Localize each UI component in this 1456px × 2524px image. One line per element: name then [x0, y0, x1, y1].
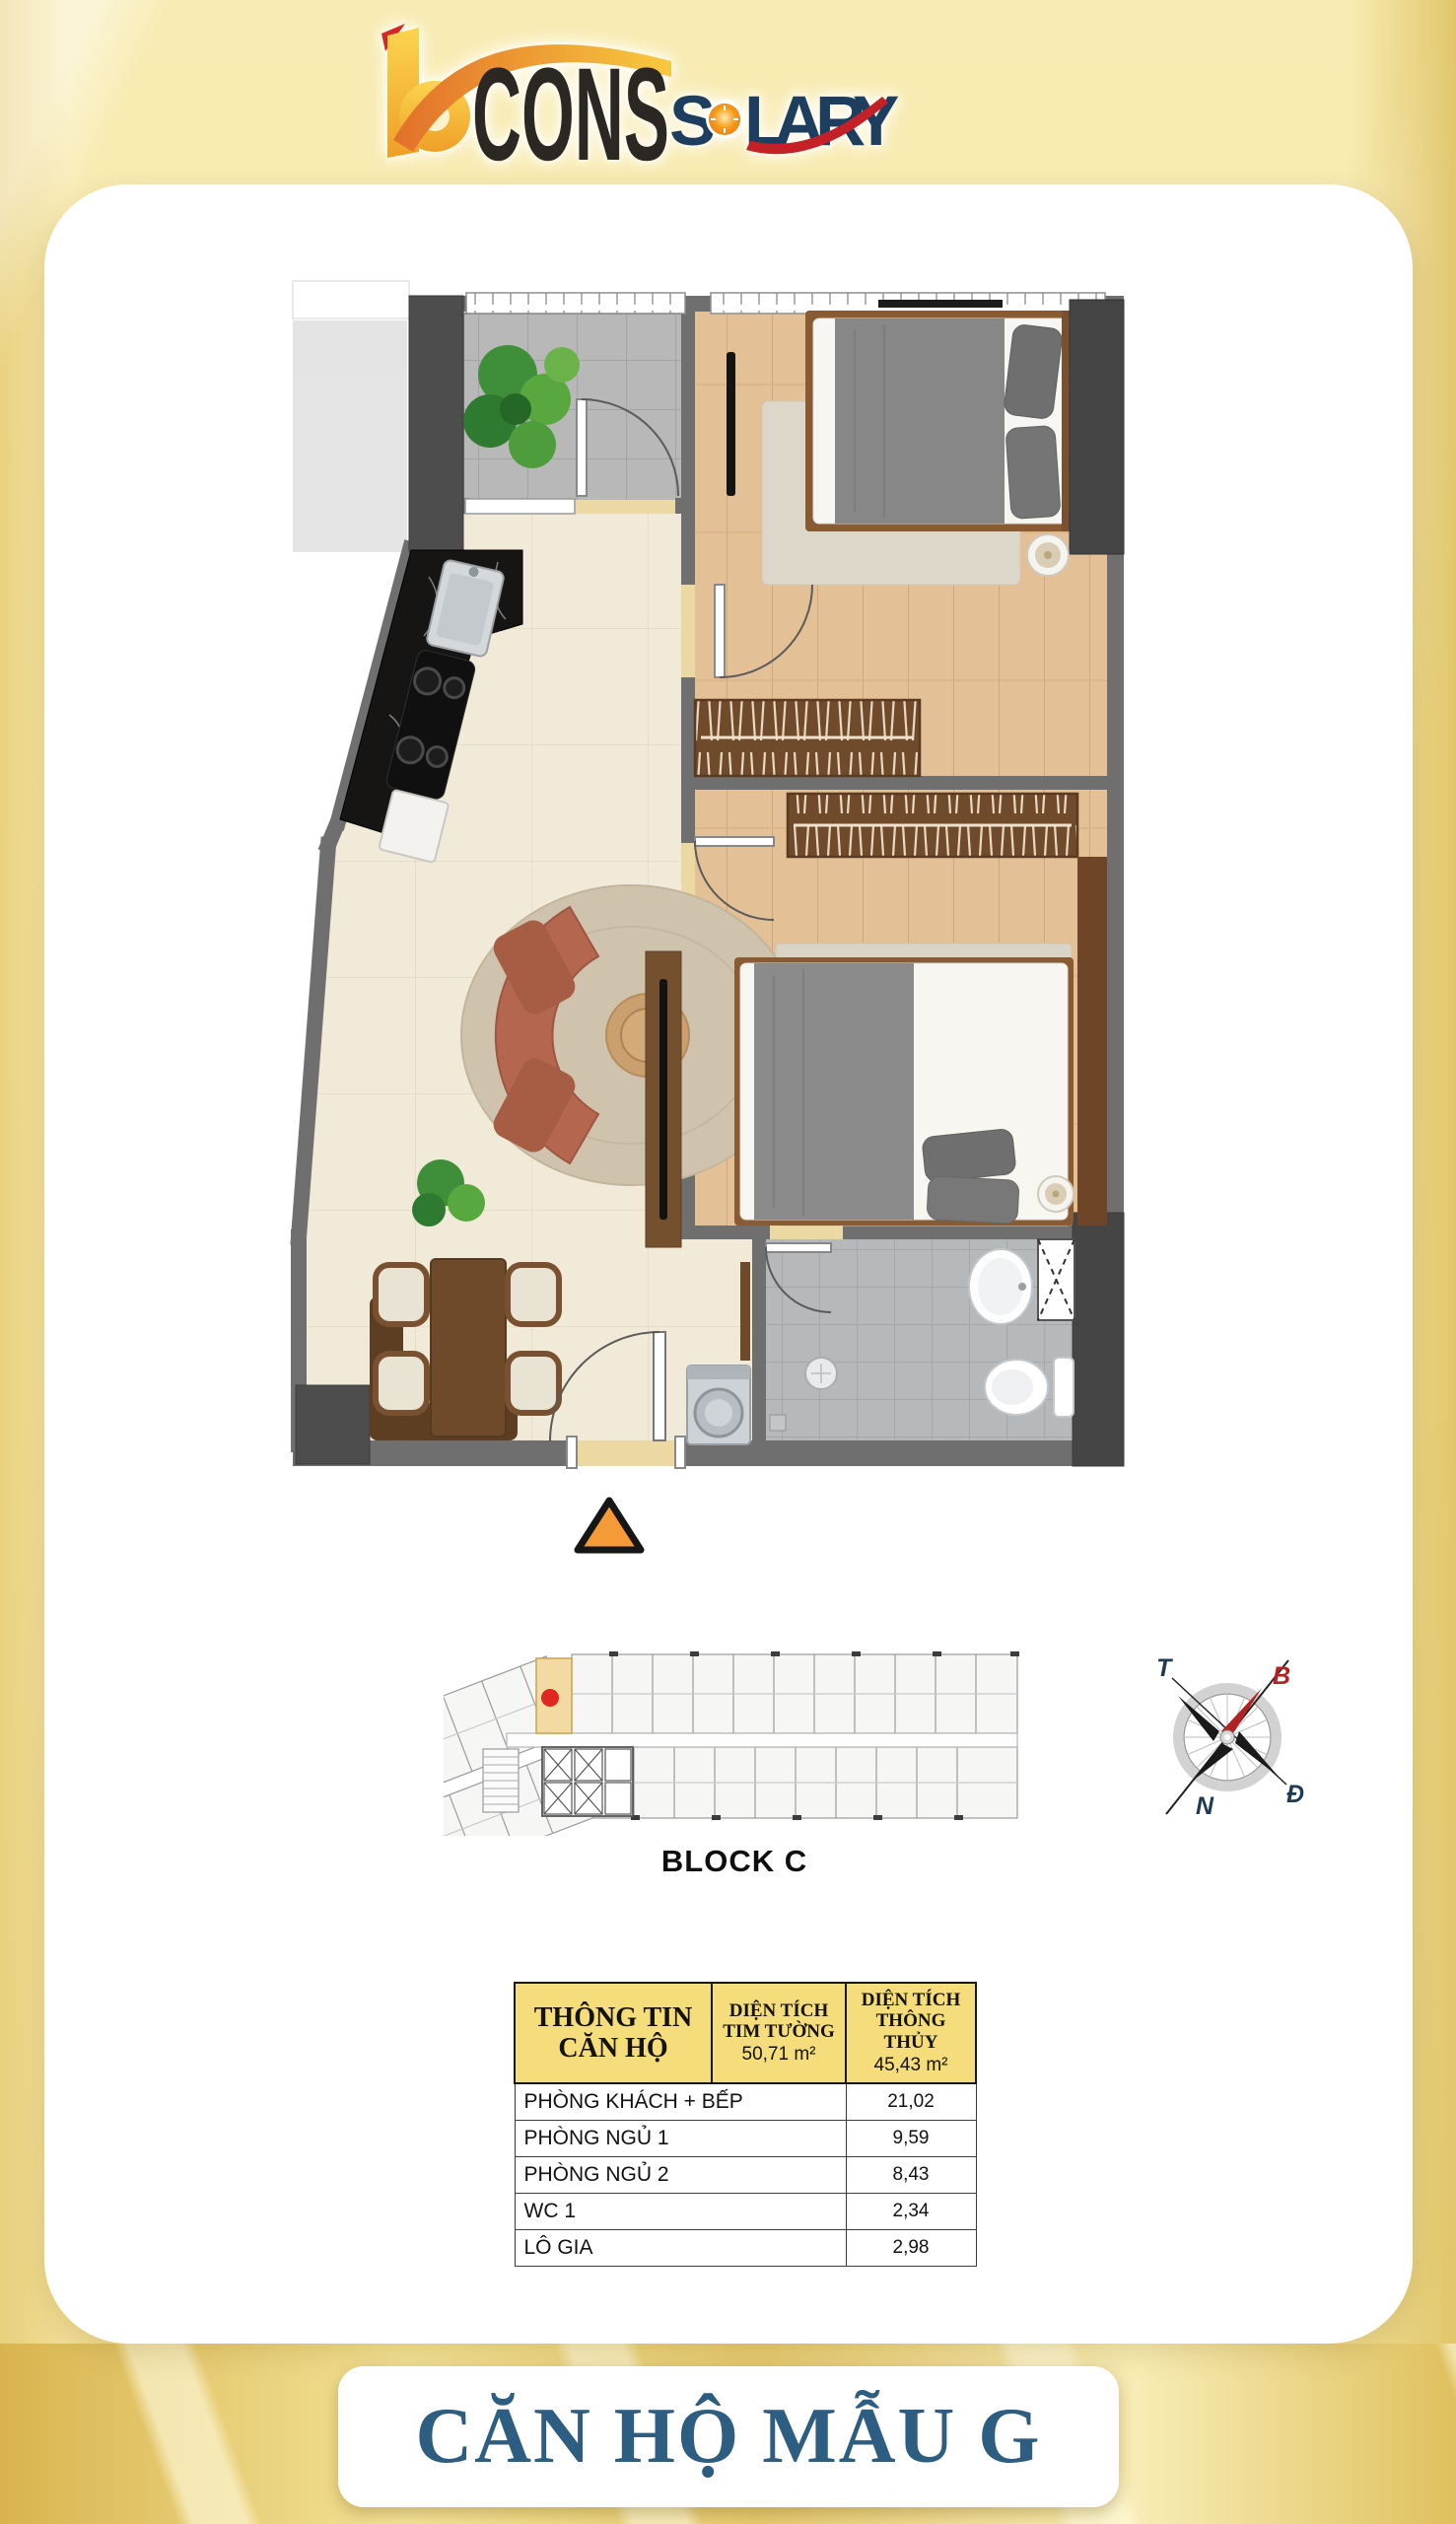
dining-table — [431, 1259, 506, 1437]
compass-south-label: N — [1196, 1792, 1214, 1820]
room-area: 2,34 — [846, 2193, 976, 2229]
room-area: 2,98 — [846, 2229, 976, 2266]
compass-west-label: T — [1156, 1654, 1174, 1682]
compass-icon: B Đ N T — [1148, 1627, 1311, 1834]
pillow — [922, 1128, 1016, 1182]
room-area: 8,43 — [846, 2156, 976, 2193]
table-row: PHÒNG NGỦ 2 8,43 — [515, 2156, 976, 2193]
block-label: BLOCK C — [444, 1844, 1025, 1879]
sun-icon — [706, 101, 743, 138]
logo-brand-text: CONS — [472, 41, 669, 177]
closet-bedroom2 — [788, 794, 1077, 857]
table-row: LÔ GIA 2,98 — [515, 2229, 976, 2266]
bed-bedroom2 — [734, 957, 1074, 1226]
bcons-solary-logo: CONS S L A R Y — [378, 20, 904, 177]
shaft — [1038, 1239, 1075, 1320]
wardrobe-bedroom1 — [1070, 300, 1124, 554]
table-row: WC 1 2,34 — [515, 2193, 976, 2229]
logo-graphic: CONS S L A R Y — [378, 20, 904, 177]
tv-icon — [727, 352, 735, 496]
room-area: 9,59 — [846, 2120, 976, 2156]
room-label: PHÒNG NGỦ 2 — [515, 2156, 846, 2193]
entrance-marker-icon — [570, 1491, 649, 1564]
bedside-table — [1038, 1176, 1074, 1212]
compass-north-label: B — [1273, 1662, 1290, 1690]
walnut-strip — [1077, 857, 1107, 1226]
washing-machine — [687, 1366, 750, 1444]
block-c-keyplan — [444, 1639, 1025, 1836]
room-area: 21,02 — [846, 2083, 976, 2121]
compass-east-label: Đ — [1286, 1781, 1304, 1808]
pillow — [1005, 425, 1061, 519]
table-header-net-area: DIỆN TÍCH THÔNG THỦY 45,43 m² — [846, 1983, 976, 2083]
table-header-gross-area: DIỆN TÍCH TIM TƯỜNG 50,71 m² — [712, 1983, 846, 2083]
unit-title: CĂN HỘ MẪU G — [415, 2392, 1041, 2482]
curtain-rail — [878, 300, 1003, 308]
tv-console — [646, 951, 681, 1247]
elevator-core — [542, 1747, 633, 1816]
neighbor-ghost — [293, 281, 409, 552]
stair-core — [483, 1749, 519, 1812]
table-row: PHÒNG KHÁCH + BẾP 21,02 — [515, 2083, 976, 2121]
slim-cabinet — [740, 1262, 750, 1361]
apartment-info-table: THÔNG TIN CĂN HỘ DIỆN TÍCH TIM TƯỜNG 50,… — [514, 1982, 977, 2267]
unit-marker-dot — [541, 1689, 559, 1707]
toilet — [985, 1358, 1074, 1417]
corridor — [507, 1733, 1017, 1747]
room-label: LÔ GIA — [515, 2229, 846, 2266]
room-label: PHÒNG NGỦ 1 — [515, 2120, 846, 2156]
bathroom-sink — [969, 1249, 1032, 1324]
bedside-table — [1027, 534, 1069, 576]
highlighted-unit — [536, 1658, 572, 1733]
unit-title-box: CĂN HỘ MẪU G — [338, 2366, 1119, 2507]
closet-bedroom1 — [695, 700, 920, 776]
room-label: WC 1 — [515, 2193, 846, 2229]
bed-bedroom1 — [805, 311, 1081, 531]
table-row: PHÒNG NGỦ 1 9,59 — [515, 2120, 976, 2156]
apartment-floor-plan — [182, 163, 1139, 1602]
tv-icon — [659, 979, 667, 1220]
room-label: PHÒNG KHÁCH + BẾP — [515, 2083, 846, 2121]
pillow — [1004, 323, 1064, 419]
table-header-info: THÔNG TIN CĂN HỘ — [515, 1983, 712, 2083]
floor-drain — [770, 1415, 786, 1431]
pillow — [927, 1176, 1019, 1225]
